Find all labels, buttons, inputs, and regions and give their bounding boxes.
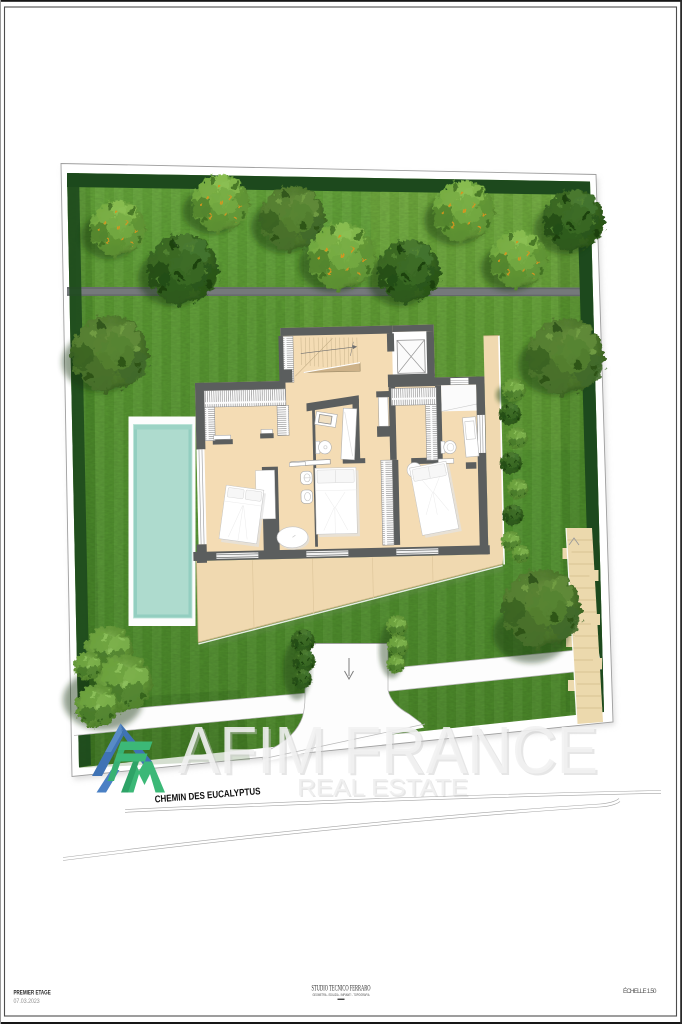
svg-text:PREMIER ETAGE: PREMIER ETAGE <box>14 990 51 997</box>
svg-text:ÉCHELLE 1.50: ÉCHELLE 1.50 <box>623 988 657 995</box>
svg-text:REAL ESTATE: REAL ESTATE <box>297 775 468 802</box>
svg-text:07.03.2023: 07.03.2023 <box>14 999 40 1006</box>
svg-text:GEOMETRA - EDILIZIA - IMPIANTI: GEOMETRA - EDILIZIA - IMPIANTI - TOPOGRA… <box>313 993 371 997</box>
svg-text:STUDIO TECNICO FERRARO: STUDIO TECNICO FERRARO <box>312 984 371 993</box>
